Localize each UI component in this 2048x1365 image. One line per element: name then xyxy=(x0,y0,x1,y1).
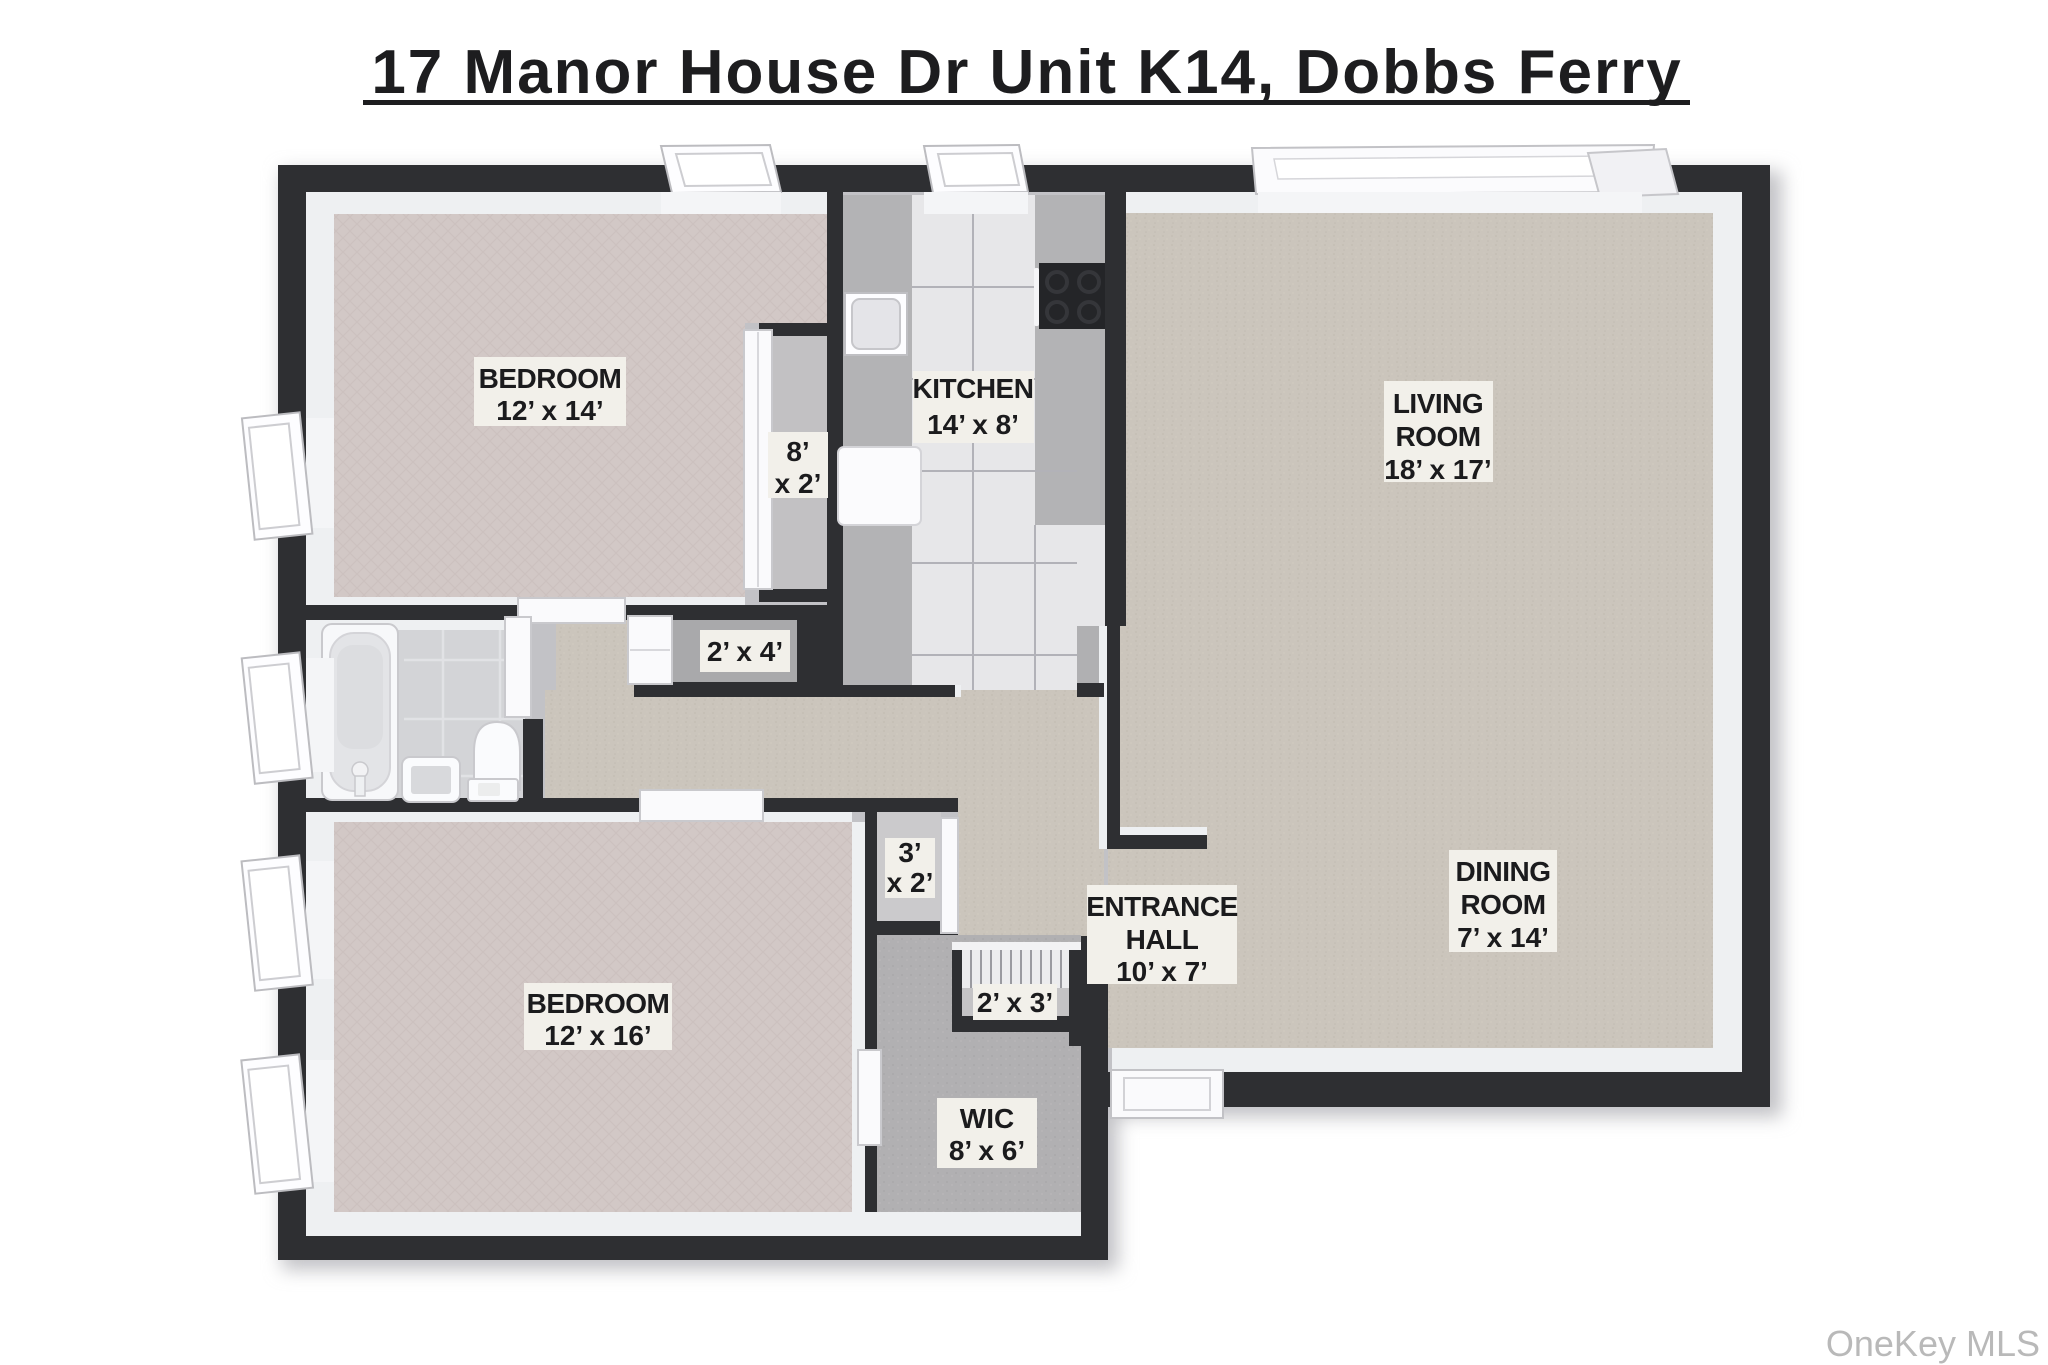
svg-text:8’: 8’ xyxy=(786,436,809,467)
svg-text:12’ x 14’: 12’ x 14’ xyxy=(496,395,603,426)
svg-text:ROOM: ROOM xyxy=(1395,421,1480,452)
svg-text:3’: 3’ xyxy=(898,837,921,868)
svg-text:ROOM: ROOM xyxy=(1460,889,1545,920)
svg-text:8’ x 6’: 8’ x 6’ xyxy=(949,1135,1025,1166)
svg-text:BEDROOM: BEDROOM xyxy=(479,363,622,394)
svg-text:17 Manor House Dr Unit K14, Do: 17 Manor House Dr Unit K14, Dobbs Ferry xyxy=(371,38,1682,107)
svg-text:x 2’: x 2’ xyxy=(887,867,934,898)
svg-text:LIVING: LIVING xyxy=(1393,388,1483,419)
svg-text:x 2’: x 2’ xyxy=(775,468,822,499)
svg-text:OneKey MLS: OneKey MLS xyxy=(1826,1323,2040,1364)
svg-text:WIC: WIC xyxy=(960,1103,1014,1134)
svg-text:18’ x 17’: 18’ x 17’ xyxy=(1384,454,1491,485)
svg-text:14’ x 8’: 14’ x 8’ xyxy=(927,409,1019,440)
svg-text:BEDROOM: BEDROOM xyxy=(527,988,670,1019)
svg-text:HALL: HALL xyxy=(1126,924,1199,955)
svg-text:KITCHEN: KITCHEN xyxy=(913,373,1034,404)
svg-text:10’ x 7’: 10’ x 7’ xyxy=(1116,956,1208,987)
svg-text:2’ x 3’: 2’ x 3’ xyxy=(977,987,1053,1018)
svg-text:7’ x 14’: 7’ x 14’ xyxy=(1457,922,1549,953)
svg-text:2’ x 4’: 2’ x 4’ xyxy=(707,636,783,667)
svg-text:ENTRANCE: ENTRANCE xyxy=(1086,891,1238,922)
svg-text:DINING: DINING xyxy=(1456,856,1551,887)
svg-text:12’ x 16’: 12’ x 16’ xyxy=(544,1020,651,1051)
